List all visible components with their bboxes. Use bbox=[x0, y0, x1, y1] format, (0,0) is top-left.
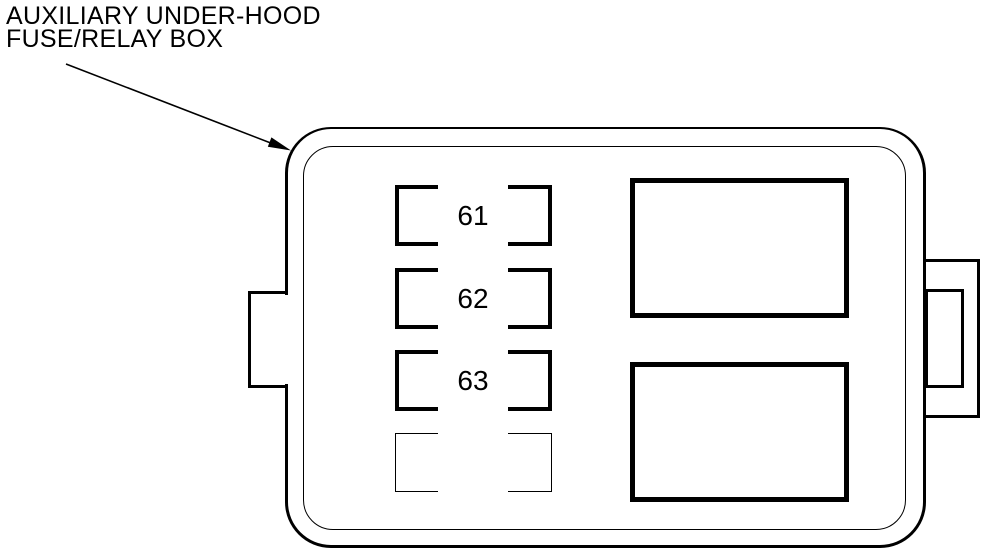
diagram-title-line2: FUSE/RELAY BOX bbox=[6, 28, 321, 51]
fuse-slot-empty bbox=[395, 433, 552, 492]
diagram-title: AUXILIARY UNDER-HOOD FUSE/RELAY BOX bbox=[6, 5, 321, 51]
relay-slot-bottom bbox=[630, 362, 849, 502]
fuse-slot-62: 62 bbox=[395, 268, 552, 329]
fuse-terminal-right bbox=[508, 433, 552, 492]
fuse-terminal-left bbox=[395, 433, 438, 492]
fuse-number: 63 bbox=[438, 350, 508, 411]
callout-arrow-line bbox=[66, 64, 272, 144]
fuse-terminal-left bbox=[395, 268, 438, 329]
fuse-number bbox=[438, 433, 508, 492]
fuse-terminal-right bbox=[508, 268, 552, 329]
fuse-relay-box-diagram: AUXILIARY UNDER-HOOD FUSE/RELAY BOX 61 6… bbox=[0, 0, 1008, 560]
left-mounting-tab bbox=[248, 291, 288, 388]
callout-arrowhead-icon bbox=[268, 137, 291, 150]
fuse-number: 62 bbox=[438, 268, 508, 329]
fuse-slot-61: 61 bbox=[395, 185, 552, 246]
fuse-terminal-left bbox=[395, 350, 438, 411]
fuse-number: 61 bbox=[438, 185, 508, 246]
fuse-terminal-left bbox=[395, 185, 438, 246]
fuse-terminal-right bbox=[508, 185, 552, 246]
fuse-slot-63: 63 bbox=[395, 350, 552, 411]
right-mounting-tab-inner bbox=[925, 289, 964, 388]
fuse-terminal-right bbox=[508, 350, 552, 411]
relay-slot-top bbox=[630, 178, 849, 318]
